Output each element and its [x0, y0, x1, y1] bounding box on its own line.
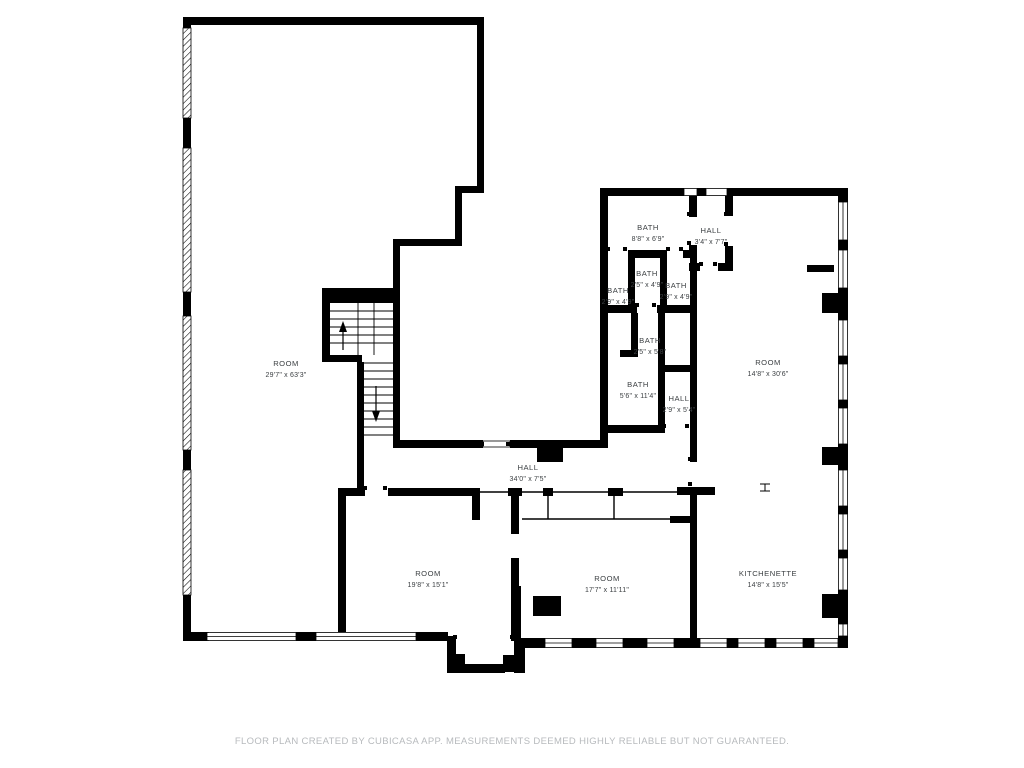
- stair-up-arrow-icon: [339, 321, 347, 350]
- label-room-bottom-mid: ROOM 17'7" x 11'11": [585, 574, 629, 594]
- room-name: BATH: [627, 380, 649, 389]
- label-bath-top: BATH 8'8" x 6'9": [632, 223, 665, 243]
- room-name: BATH: [665, 281, 687, 290]
- label-room-bottom-left: ROOM 19'8" x 15'1": [408, 569, 449, 589]
- room-dims: 2'9" x 4'9": [660, 294, 693, 301]
- room-name: KITCHENETTE: [739, 569, 797, 578]
- room-dims: 2'9" x 4'9": [602, 299, 635, 306]
- room-dims: 29'7" x 63'3": [266, 372, 307, 379]
- room-dims: 3'4" x 7'7": [695, 239, 728, 246]
- room-name: HALL: [518, 463, 539, 472]
- room-name: BATH: [636, 269, 658, 278]
- stair-down-arrow-icon: [372, 386, 380, 422]
- room-name: BATH: [607, 286, 629, 295]
- entry-vestibule: [447, 636, 525, 673]
- room-name: BATH: [637, 223, 659, 232]
- room-dims: 34'0" x 7'5": [510, 476, 547, 483]
- floor-plan-canvas: ROOM 29'7" x 63'3" BATH 8'8" x 6'9" HALL…: [0, 0, 1024, 768]
- label-bath-lower: BATH 5'6" x 11'4": [620, 380, 657, 400]
- room-dims: 14'8" x 15'5": [748, 582, 789, 589]
- room-name: ROOM: [755, 358, 781, 367]
- opening-symbol: [760, 484, 770, 491]
- label-bath-small-mid: BATH 2'5" x 4'9": [631, 269, 664, 289]
- hall-north-opening: [483, 441, 510, 447]
- room-name: ROOM: [273, 359, 299, 368]
- chase-block: [533, 596, 561, 616]
- label-hall-main: HALL 34'0" x 7'5": [510, 463, 547, 483]
- room-dims: 2'5" x 4'9": [631, 282, 664, 289]
- column: [822, 447, 838, 465]
- chase-block: [537, 448, 563, 462]
- room-dims: 14'8" x 30'6": [748, 371, 789, 378]
- room-dims: 19'8" x 15'1": [408, 582, 449, 589]
- room-dims: 2'5" x 5'8": [634, 349, 667, 356]
- room-dims: 8'8" x 6'9": [632, 236, 665, 243]
- room-dims: 17'7" x 11'11": [585, 587, 629, 594]
- label-hall-top: HALL 3'4" x 7'7": [695, 226, 728, 246]
- column: [822, 594, 838, 618]
- room-dims: 5'6" x 11'4": [620, 393, 657, 400]
- room-name: ROOM: [415, 569, 441, 578]
- room-name: BATH: [639, 336, 661, 345]
- room-dims: 2'9" x 5'4": [663, 407, 696, 414]
- label-room-large: ROOM 29'7" x 63'3": [266, 359, 307, 379]
- room-name: HALL: [669, 394, 690, 403]
- room-name: HALL: [701, 226, 722, 235]
- label-room-right: ROOM 14'8" x 30'6": [748, 358, 789, 378]
- label-kitchenette: KITCHENETTE 14'8" x 15'5": [739, 569, 797, 589]
- room-name: ROOM: [594, 574, 620, 583]
- disclaimer-text: FLOOR PLAN CREATED BY CUBICASA APP. MEAS…: [0, 736, 1024, 747]
- column: [822, 293, 838, 313]
- windows: [207, 189, 848, 648]
